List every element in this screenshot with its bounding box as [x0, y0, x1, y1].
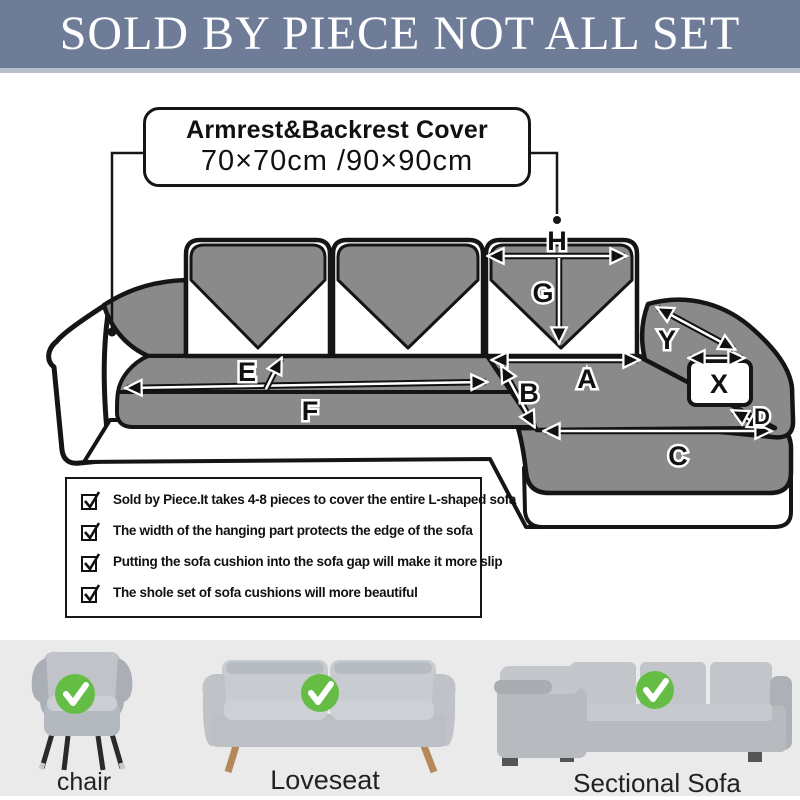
- checklist-item: Putting the sofa cushion into the sofa g…: [67, 546, 480, 577]
- label-d: D: [754, 404, 770, 429]
- connector-left-dot: [108, 328, 117, 337]
- checkbox-checked-icon: [80, 520, 102, 542]
- product-label-sectional-sofa: Sectional Sofa: [557, 768, 757, 799]
- product-label-loveseat: Loveseat: [245, 765, 405, 796]
- checklist-item: Sold by Piece.It takes 4-8 pieces to cov…: [67, 484, 480, 515]
- sectional-check-badge: [636, 671, 674, 709]
- checklist-item-text: The width of the hanging part protects t…: [113, 523, 473, 538]
- connector-right: [529, 153, 557, 214]
- label-x: X: [710, 369, 728, 399]
- checkbox-checked-icon: [80, 489, 102, 511]
- feature-checklist: Sold by Piece.It takes 4-8 pieces to cov…: [65, 477, 482, 618]
- checkbox-checked-icon: [80, 551, 102, 573]
- callout-sizes: 70×70cm /90×90cm: [146, 145, 528, 178]
- checklist-item-text: Putting the sofa cushion into the sofa g…: [113, 554, 502, 569]
- chaise-front-face: [518, 428, 791, 493]
- checklist-item-text: Sold by Piece.It takes 4-8 pieces to cov…: [113, 492, 516, 507]
- chair-check-badge: [55, 674, 95, 714]
- label-a: A: [577, 364, 597, 394]
- callout-title: Armrest&Backrest Cover: [146, 116, 528, 145]
- checkbox-checked-icon: [80, 582, 102, 604]
- label-c: C: [668, 441, 688, 471]
- product-label-chair: chair: [24, 768, 144, 797]
- checklist-item: The shole set of sofa cushions will more…: [67, 577, 480, 608]
- label-y: Y: [658, 325, 676, 355]
- loveseat-check-badge: [301, 674, 339, 712]
- back-cushion-2: [333, 240, 483, 356]
- label-h: H: [547, 226, 567, 256]
- connector-right-dot: [553, 216, 561, 224]
- checklist-item-text: The shole set of sofa cushions will more…: [113, 585, 418, 600]
- product-infographic: SOLD BY PIECE NOT ALL SET Armrest&Backre…: [0, 0, 800, 800]
- checklist-item: The width of the hanging part protects t…: [67, 515, 480, 546]
- label-f: F: [302, 396, 319, 426]
- size-callout-box: Armrest&Backrest Cover 70×70cm /90×90cm: [143, 107, 531, 187]
- label-g: G: [532, 278, 553, 308]
- label-b: B: [519, 378, 539, 408]
- back-cushion-1: [186, 240, 330, 356]
- sofa-left-armrest-top: [104, 280, 186, 356]
- label-e: E: [238, 357, 256, 387]
